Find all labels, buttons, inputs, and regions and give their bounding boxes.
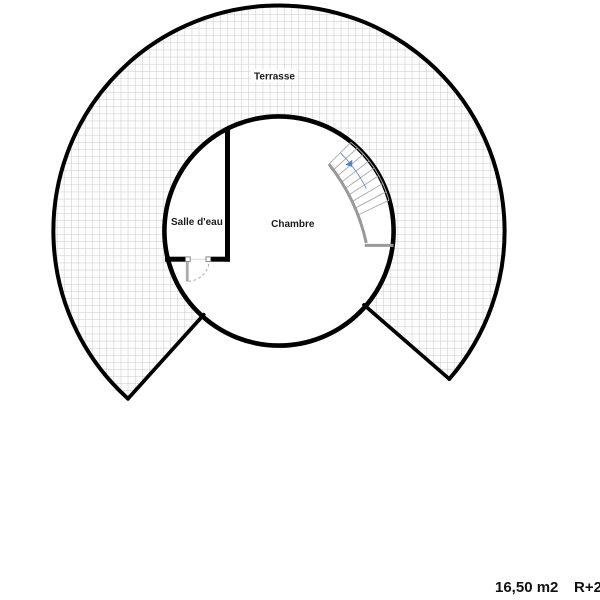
- svg-text:Salle d'eau: Salle d'eau: [171, 217, 223, 228]
- svg-text:Terrasse: Terrasse: [254, 72, 295, 83]
- svg-text:Chambre: Chambre: [271, 219, 315, 230]
- svg-text:16,50 m2: 16,50 m2: [495, 579, 558, 596]
- svg-text:R+2: R+2: [574, 579, 600, 596]
